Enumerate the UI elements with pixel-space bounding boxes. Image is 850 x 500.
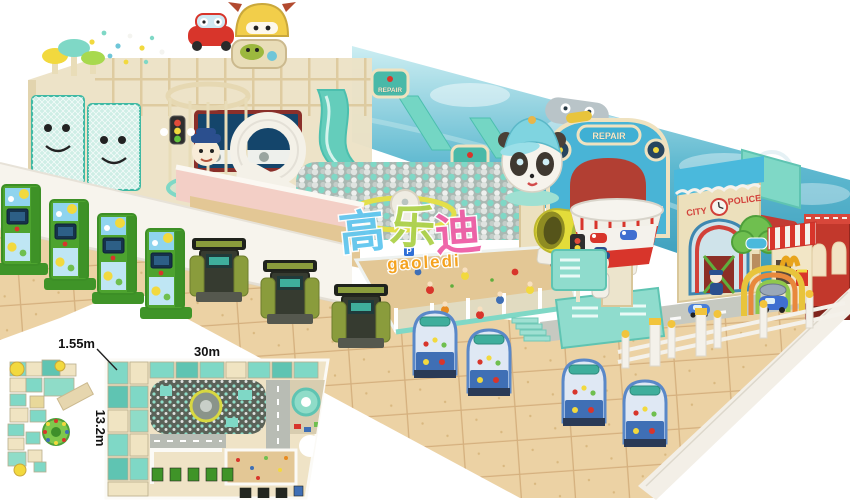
arcade-machine bbox=[92, 214, 144, 304]
tree-car-cutout bbox=[746, 238, 767, 249]
red-car-topper bbox=[188, 14, 234, 51]
floor-plan-large bbox=[97, 349, 328, 498]
gate-pillar bbox=[650, 322, 660, 366]
racing-kiosk bbox=[332, 284, 390, 348]
repair-banner-text: REPAIR bbox=[378, 87, 402, 94]
car-face-sign bbox=[232, 40, 286, 68]
wash-roller bbox=[760, 284, 786, 296]
plan-carousel bbox=[43, 419, 69, 445]
claw-machine bbox=[624, 381, 666, 447]
watermark-char-1: 高 bbox=[336, 204, 387, 261]
claw-machine bbox=[414, 312, 456, 378]
scene: REPAIR REPAIR REPAIR bbox=[0, 0, 850, 500]
arcade-machine bbox=[140, 229, 192, 319]
dimension-label-wall: 1.55m bbox=[58, 336, 95, 351]
claw-machine bbox=[468, 330, 510, 396]
arcade-machine bbox=[0, 185, 48, 275]
cloud bbox=[430, 83, 510, 107]
plan-rooms bbox=[108, 362, 148, 496]
plan-column bbox=[299, 435, 321, 457]
plan-sand-area bbox=[226, 450, 296, 484]
playground-render: REPAIR REPAIR REPAIR bbox=[0, 0, 850, 500]
racing-kiosk bbox=[190, 238, 248, 302]
utility-box bbox=[552, 250, 606, 290]
plan-duck-feature bbox=[10, 362, 24, 376]
claw-machine bbox=[563, 360, 605, 426]
monster-head-topper bbox=[228, 2, 296, 36]
repair-banner: REPAIR bbox=[372, 70, 408, 97]
racing-kiosk bbox=[261, 260, 319, 324]
repair-arch-text: REPAIR bbox=[592, 131, 626, 141]
floor-plan-small bbox=[8, 360, 93, 476]
arcade-machine bbox=[44, 200, 96, 290]
gate-pillar bbox=[696, 312, 706, 356]
golden-arches bbox=[782, 258, 798, 266]
dimension-label-depth: 13.2m bbox=[93, 410, 108, 447]
watermark-char-2: 乐 bbox=[389, 200, 438, 254]
plan-ball-area bbox=[150, 380, 266, 434]
car-wash bbox=[744, 268, 802, 316]
dimension-label-width: 30m bbox=[194, 344, 220, 359]
watermark-subtitle: gaoledi bbox=[387, 251, 461, 274]
mushroom-toppers bbox=[42, 39, 105, 76]
